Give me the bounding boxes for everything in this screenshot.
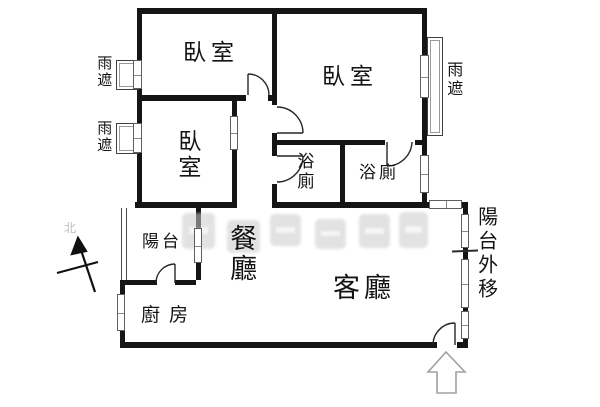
room-label-kitchen: 廚房 xyxy=(141,305,197,326)
door-arc xyxy=(433,323,455,345)
room-label-bath-right: 浴廁 xyxy=(359,164,399,182)
room-label-living: 客廳 xyxy=(333,274,395,303)
floor-plan: 臥室 臥室 臥室 浴廁 浴廁 陽台 餐廳 客廳 廚房 陽台外移 雨遮 雨遮 雨遮… xyxy=(0,0,600,407)
room-label-dining: 餐廳 xyxy=(226,224,255,284)
room-label-bedroom-mid-left: 臥室 xyxy=(174,129,199,181)
door-arc xyxy=(277,107,303,133)
room-label-bedroom-top-right: 臥室 xyxy=(322,65,378,90)
label-north: 北 xyxy=(64,222,76,235)
room-label-bedroom-top-left: 臥室 xyxy=(183,41,239,66)
label-rain-cover-left-bottom: 雨遮 xyxy=(96,120,112,154)
label-balcony-extended: 陽台外移 xyxy=(475,206,497,302)
room-label-bath-left: 浴廁 xyxy=(294,152,312,192)
door-arcs-layer xyxy=(0,0,600,407)
door-arc xyxy=(156,264,175,283)
compass-north-arrow xyxy=(57,238,98,292)
room-label-balcony: 陽台 xyxy=(142,233,182,251)
entrance-arrow-icon xyxy=(428,352,465,393)
label-rain-cover-left-top: 雨遮 xyxy=(96,55,112,89)
label-rain-cover-right: 雨遮 xyxy=(445,61,462,99)
door-arc xyxy=(248,74,269,95)
